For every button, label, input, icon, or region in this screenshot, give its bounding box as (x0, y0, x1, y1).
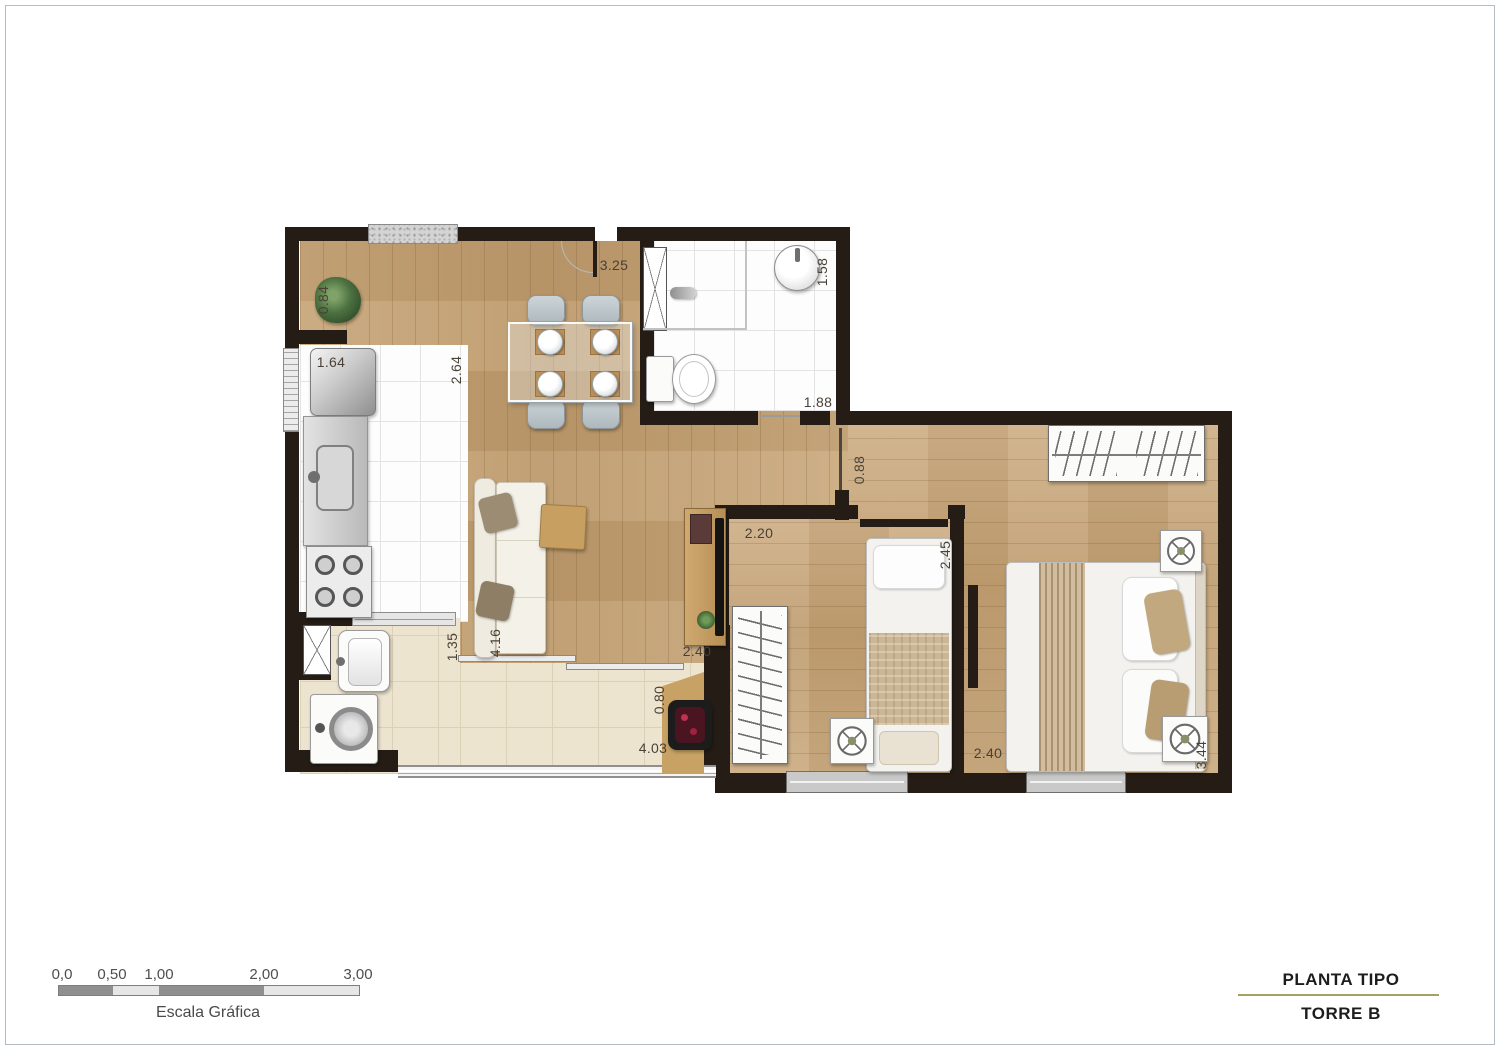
plate (537, 329, 563, 355)
closet (1048, 425, 1205, 482)
hall-door-line (839, 428, 842, 490)
washing-machine (310, 694, 378, 764)
kitchen-side-window (283, 348, 299, 432)
wardrobe (732, 606, 788, 764)
shower-head (670, 287, 696, 299)
lamp-icon (831, 719, 873, 763)
burner (315, 587, 335, 607)
tv-rack-plant (697, 611, 715, 629)
dim-bedroom2-width: 2.40 (974, 745, 1002, 761)
bedroom1-door-leaf (860, 519, 948, 527)
apartment-floor-plan: 0.84 3.25 1.58 1.64 2.64 1.88 0.88 2.20 … (285, 227, 1232, 793)
bathroom-shaft (643, 247, 667, 331)
dim-ledge: 0.84 (315, 286, 331, 314)
toilet-tank (646, 356, 674, 402)
sliding-panel-right (566, 663, 684, 670)
plate (592, 371, 618, 397)
dining-chair (527, 295, 565, 325)
side-table (539, 504, 587, 550)
stove (306, 546, 372, 618)
wall-bathroom-bottom (640, 411, 758, 425)
floor-plan-page: 0.84 3.25 1.58 1.64 2.64 1.88 0.88 2.20 … (0, 0, 1500, 1050)
laundry-tank (338, 630, 390, 692)
sink-faucet (795, 248, 800, 262)
scale-tick-label: 2,00 (249, 966, 278, 983)
dim-bathroom-width: 1.58 (814, 258, 830, 286)
dim-kitchen-width: 1.64 (317, 354, 345, 370)
bathroom-door-line (760, 415, 800, 417)
grill-ember (690, 728, 697, 735)
bed-foot-cushion (879, 731, 939, 765)
shower-partition-v (745, 241, 747, 330)
scale-segment (159, 986, 264, 995)
dim-living-depth: 4.16 (487, 629, 503, 657)
toilet-seat (679, 361, 709, 397)
dim-bedroom1-width: 2.20 (745, 525, 773, 541)
dim-kitchen-depth: 2.64 (448, 356, 464, 384)
wardrobe-rod (760, 611, 762, 759)
bed-runner (1039, 563, 1085, 771)
dim-bedroom1-depth: 2.45 (937, 541, 953, 569)
bed-blanket (869, 633, 949, 725)
dining-chair (527, 399, 565, 429)
dim-balcony-width: 4.03 (639, 740, 667, 756)
burner (315, 555, 335, 575)
scale-caption: Escala Gráfica (156, 1004, 260, 1022)
sliding-panel-left (458, 655, 576, 662)
bedroom2-window (1026, 771, 1126, 793)
scale-tick-label: 3,00 (343, 966, 372, 983)
wall-mid-b (800, 411, 830, 425)
grill-pan (675, 707, 705, 743)
toilet-bowl (672, 354, 716, 404)
scale-tick-label: 1,00 (144, 966, 173, 983)
kitchen-counter (303, 416, 368, 546)
kitchen-faucet (308, 471, 320, 483)
bed-pillow (873, 545, 945, 589)
title-divider (1238, 994, 1439, 996)
closet-rod (1052, 454, 1201, 456)
single-bed (866, 538, 952, 772)
washer-door (329, 707, 373, 751)
wall-bedroom2-top (848, 411, 1232, 425)
entry-door-leaf (593, 241, 597, 277)
tank-basin (348, 638, 382, 686)
burner (343, 555, 363, 575)
burner (343, 587, 363, 607)
dim-bedroom2-depth: 3.44 (1193, 741, 1209, 769)
service-shaft (303, 625, 331, 675)
dining-chair (582, 399, 620, 429)
tank-faucet (336, 657, 345, 666)
washer-dial (315, 723, 325, 733)
nightstand-bedroom2-top (1160, 530, 1202, 572)
wall-ledge-stub (285, 330, 347, 344)
scale-bar (58, 985, 360, 996)
dim-living-width2: 2.40 (683, 643, 711, 659)
tv-rack-decor (690, 514, 712, 544)
tv (715, 518, 724, 636)
scale-tick-label: 0,0 (52, 966, 73, 983)
kitchen-window-granite (368, 224, 458, 244)
plan-title: PLANTA TIPO (1283, 970, 1400, 990)
wall-left (285, 227, 299, 772)
scale-segment (264, 986, 359, 995)
dim-hall-door: 0.88 (851, 456, 867, 484)
plate (592, 329, 618, 355)
grill-ember (681, 714, 688, 721)
plate (537, 371, 563, 397)
bedroom2-door-leaf (968, 585, 978, 688)
kitchen-sink (316, 445, 354, 511)
dim-balcony-depth: 0.80 (651, 686, 667, 714)
barbecue-grill (668, 700, 712, 750)
nightstand-bedroom1 (830, 718, 874, 764)
wall-bathroom-right (836, 227, 850, 425)
tower-label: TORRE B (1301, 1004, 1381, 1024)
scale-segment (59, 986, 113, 995)
bedroom1-window (786, 771, 908, 793)
wall-bedroom1-top-a (715, 505, 858, 519)
wall-top-right (617, 227, 850, 241)
dining-chair (582, 295, 620, 325)
shower-partition-h (643, 328, 747, 330)
wall-bedroom2-right (1218, 411, 1232, 793)
dim-living-top: 3.25 (600, 257, 628, 273)
dim-bathroom-depth: 1.88 (804, 394, 832, 410)
scale-segment (113, 986, 159, 995)
dim-service-width: 1.35 (444, 633, 460, 661)
scale-tick-label: 0,50 (97, 966, 126, 983)
lamp-icon (1161, 531, 1201, 571)
